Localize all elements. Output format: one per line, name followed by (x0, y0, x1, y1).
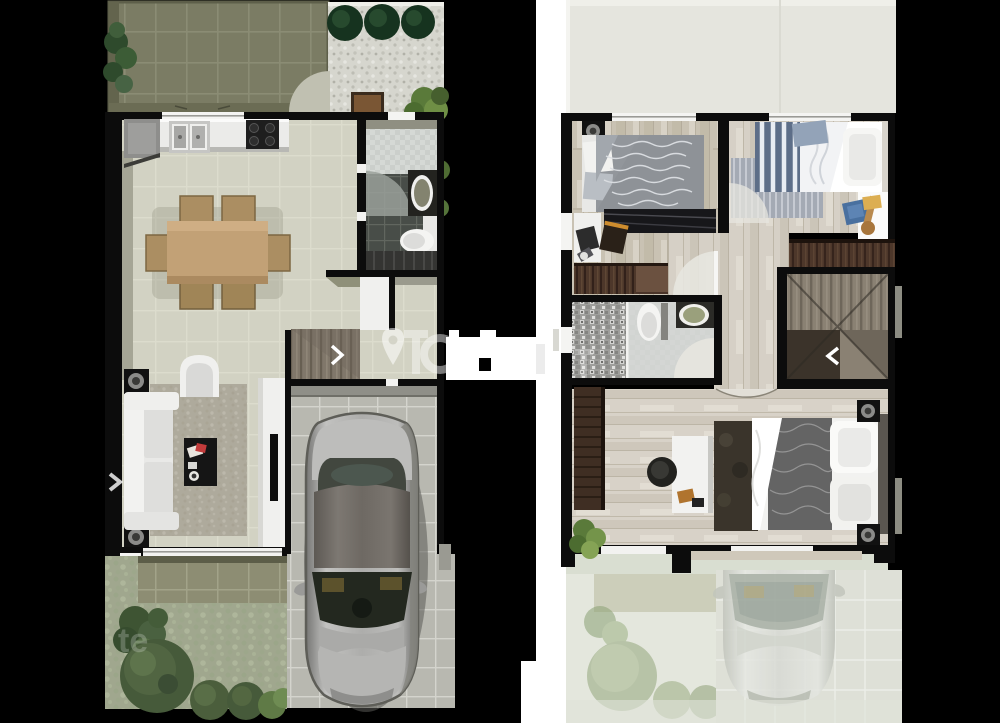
svg-text:te: te (118, 622, 148, 660)
